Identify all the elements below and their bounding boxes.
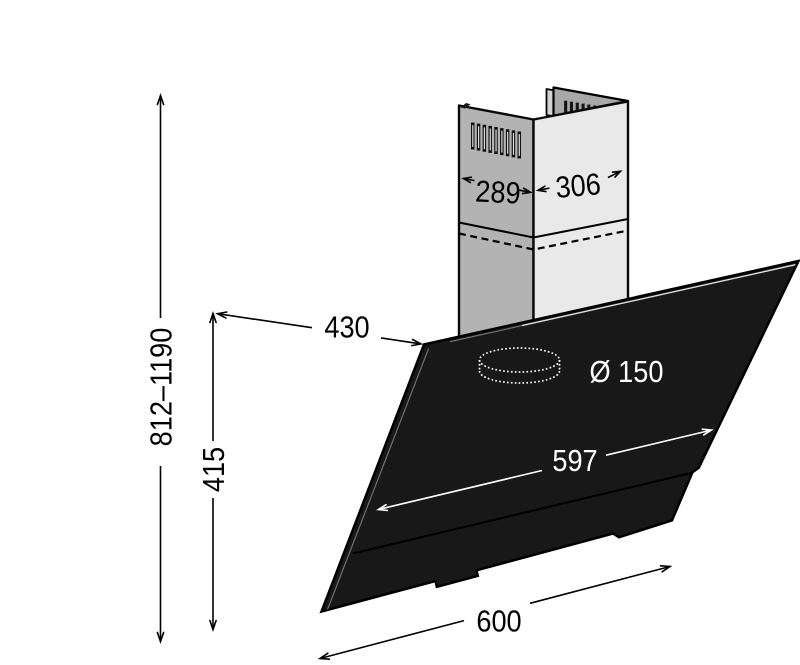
svg-text:Ø 150: Ø 150 [590,356,664,390]
svg-text:306: 306 [554,168,602,206]
svg-text:597: 597 [552,445,597,479]
svg-text:430: 430 [324,311,369,345]
svg-text:812–1190: 812–1190 [145,328,179,447]
svg-text:415: 415 [198,447,232,492]
svg-text:289: 289 [475,175,522,211]
svg-text:600: 600 [476,605,521,639]
